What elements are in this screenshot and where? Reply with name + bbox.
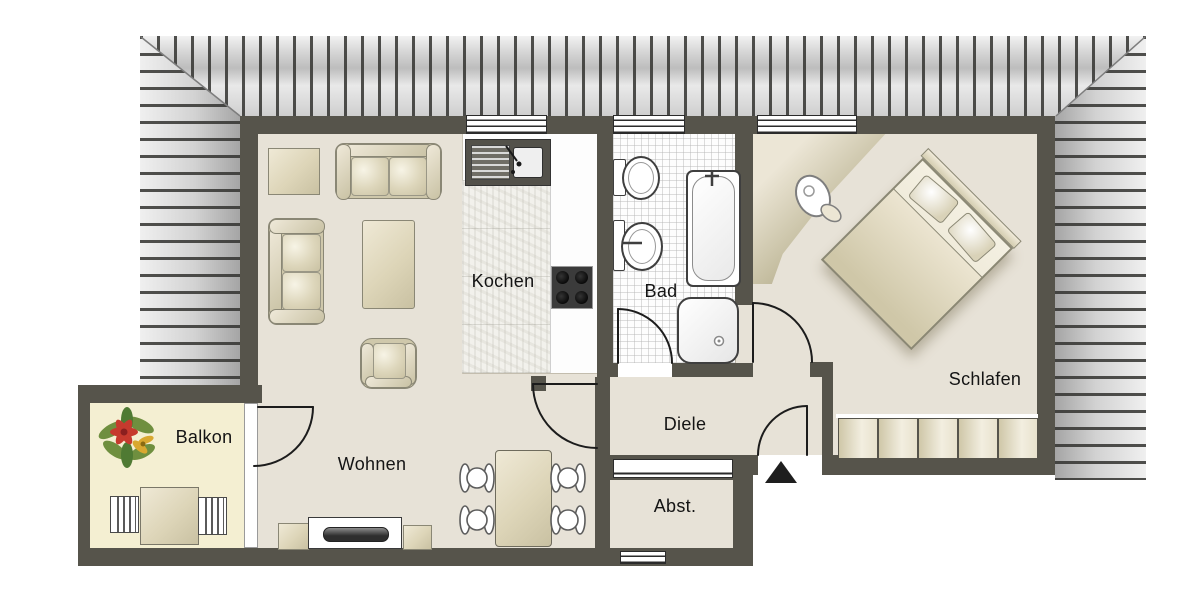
sideboard-tv [308, 517, 402, 549]
wall-kochen-bad [597, 134, 613, 377]
bathtub [686, 170, 741, 287]
balcony-folding-chair [110, 496, 139, 533]
cabinet [838, 418, 878, 459]
dining-table [495, 450, 552, 547]
room-label-diele: Diele [664, 415, 707, 433]
wall-abst-right [733, 455, 753, 566]
armchair [360, 338, 417, 389]
window-kochen [466, 115, 547, 134]
wall-wohnen-diele [595, 377, 610, 566]
wall-entry-right [822, 377, 833, 455]
wall-balcony-top [78, 385, 262, 403]
wall-left [240, 116, 258, 386]
sink-basin [513, 147, 543, 178]
wall-bad-bottom-left [613, 363, 618, 377]
washbasin-bowl [621, 222, 663, 271]
roof-hatch-top [140, 36, 1146, 116]
cabinet [918, 418, 958, 459]
balcony-table [140, 487, 199, 545]
room-label-wohnen: Wohnen [338, 455, 407, 473]
wall-balcony-left [78, 385, 90, 566]
room-label-bad: Bad [645, 282, 678, 300]
kitchen-sink [465, 139, 551, 186]
room-label-balkon: Balkon [176, 428, 233, 446]
entrance-arrow-icon [765, 461, 797, 483]
window-abst [620, 551, 666, 564]
side-table [268, 148, 320, 195]
cabinet [958, 418, 998, 459]
balcony-folding-chair [198, 497, 227, 535]
room-label-schlafen: Schlafen [949, 370, 1021, 388]
wall-stub-schlafen [810, 362, 833, 377]
lowboard-right-block [403, 525, 432, 550]
room-label-abst: Abst. [654, 497, 697, 515]
wall-bad-bottom-right [672, 363, 753, 377]
sink-drainer-icon [471, 145, 510, 180]
window-bad [613, 115, 685, 134]
room-label-kochen: Kochen [472, 272, 535, 290]
coffee-table [362, 220, 415, 309]
window-schlafen [757, 115, 857, 134]
floor-plan: Wohnen Kochen Bad Schlafen Diele Abst. B… [0, 0, 1200, 600]
sofa-two-seat-top [335, 143, 442, 199]
cabinet [878, 418, 918, 459]
sofa-two-seat-left [268, 218, 324, 325]
stove [551, 266, 593, 309]
lowboard-left-block [278, 523, 309, 550]
wall-right [1037, 116, 1055, 475]
tv-icon [323, 527, 389, 542]
floor-diele [610, 377, 822, 455]
shower [677, 297, 739, 364]
abst-sliding-door [613, 459, 733, 478]
toilet-bowl [622, 156, 660, 200]
cabinet [998, 418, 1038, 459]
balcony-door-frame [244, 403, 258, 548]
wall-stub-kitchen [531, 376, 546, 391]
